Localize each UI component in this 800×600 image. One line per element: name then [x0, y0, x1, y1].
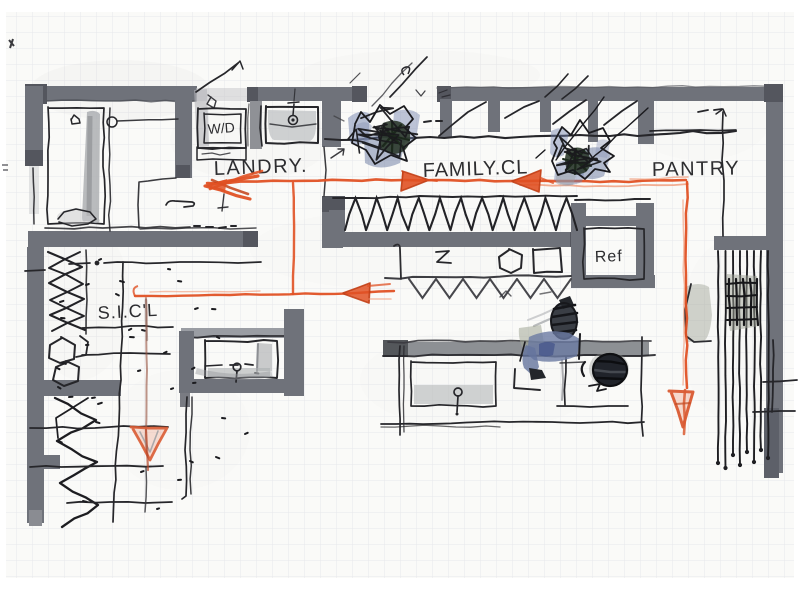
- svg-text:FAMILY.CL: FAMILY.CL: [422, 156, 528, 182]
- svg-text:S.I.C'L: S.I.C'L: [97, 300, 158, 323]
- svg-text:W/D: W/D: [207, 119, 235, 137]
- svg-text:Ref: Ref: [595, 248, 623, 266]
- svg-text:LANDRY.: LANDRY.: [213, 155, 308, 180]
